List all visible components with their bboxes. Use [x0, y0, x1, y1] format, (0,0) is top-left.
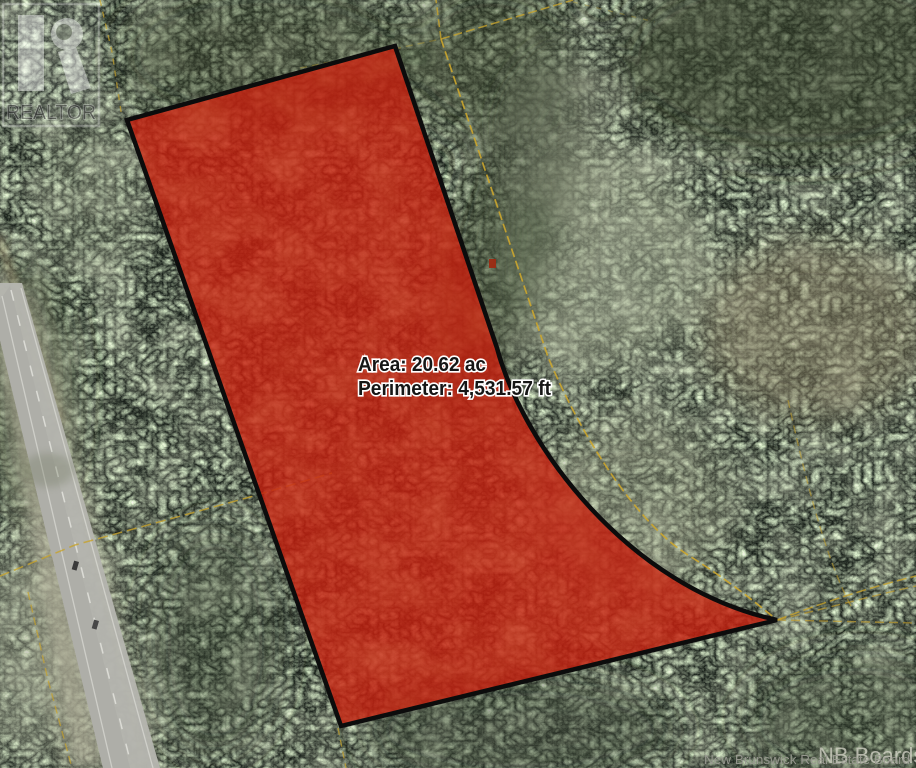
svg-text:New Brunswick Real Estate Boar: New Brunswick Real Estate Board: [704, 752, 910, 767]
svg-text:Area: 20.62 ac: Area: 20.62 ac: [358, 354, 486, 376]
svg-text:Perimeter: 4,531.57 ft: Perimeter: 4,531.57 ft: [358, 378, 551, 400]
svg-text:REALTOR: REALTOR: [6, 102, 96, 124]
